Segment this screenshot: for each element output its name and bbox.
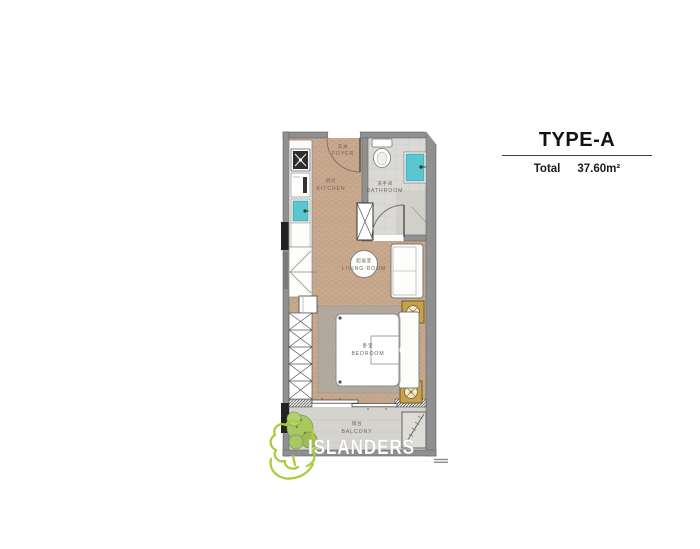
room-label-bathroom-zh: 洗手间 bbox=[377, 180, 393, 187]
wall-right bbox=[426, 132, 436, 456]
room-label-balcony-zh: 阳台 bbox=[352, 420, 362, 427]
hatched-wall-left bbox=[289, 399, 312, 407]
room-label-kitchen-zh: 厨房 bbox=[326, 177, 336, 184]
room-label-living-en: LIVING ROOM bbox=[342, 266, 387, 272]
room-label-foyer-en: FOYER bbox=[332, 151, 354, 157]
room-label-bedroom-en: BEDROOM bbox=[351, 351, 384, 357]
stove-icon bbox=[291, 149, 310, 171]
bed bbox=[336, 312, 419, 388]
toilet-icon bbox=[372, 139, 392, 168]
room-label-bedroom-zh: 卧室 bbox=[363, 342, 373, 349]
wall-bathroom-bottom-right bbox=[404, 235, 426, 241]
page: 玄关 FOYER 厨房 KITCHEN 洗手间 BATHROOM 起居室 LIV… bbox=[0, 0, 700, 549]
room-label-living-zh: 起居室 bbox=[356, 257, 372, 264]
tagline-end-bars bbox=[434, 459, 448, 463]
kitchen-counter bbox=[289, 140, 312, 247]
total-label: Total bbox=[534, 163, 561, 175]
oven-icon bbox=[291, 173, 310, 197]
header-divider bbox=[502, 155, 652, 156]
folded-quilt bbox=[371, 336, 399, 364]
wall-panel bbox=[284, 252, 289, 289]
sofa bbox=[391, 244, 423, 298]
hall-cabinet bbox=[357, 203, 373, 240]
brand-name: ISLANDERS bbox=[308, 436, 415, 459]
plan-type-title: TYPE-A bbox=[500, 129, 654, 151]
column-left-upper bbox=[281, 222, 289, 250]
kitchen-sink-icon bbox=[291, 199, 310, 223]
counter-segment bbox=[291, 223, 310, 247]
wardrobe bbox=[289, 313, 312, 399]
floor-plan: 玄关 FOYER 厨房 KITCHEN 洗手间 BATHROOM 起居室 LIV… bbox=[0, 0, 700, 549]
room-label-foyer-zh: 玄关 bbox=[338, 143, 348, 150]
round-table bbox=[351, 251, 378, 278]
bathroom-sink-icon bbox=[404, 152, 426, 183]
room-label-balcony-en: BALCONY bbox=[341, 429, 372, 435]
logo-tagline: ········· ·············· · ······ ····· … bbox=[303, 460, 431, 464]
shower bbox=[396, 190, 426, 235]
room-label-bathroom-en: BATHROOM bbox=[367, 188, 404, 194]
room-label-kitchen-en: KITCHEN bbox=[316, 186, 345, 192]
stool bbox=[299, 296, 317, 313]
total-area-row: Total 37.60m² bbox=[500, 163, 654, 175]
total-value: 37.60m² bbox=[577, 163, 620, 175]
wall-top-left bbox=[283, 132, 328, 138]
plan-header: TYPE-A Total 37.60m² bbox=[500, 129, 654, 175]
